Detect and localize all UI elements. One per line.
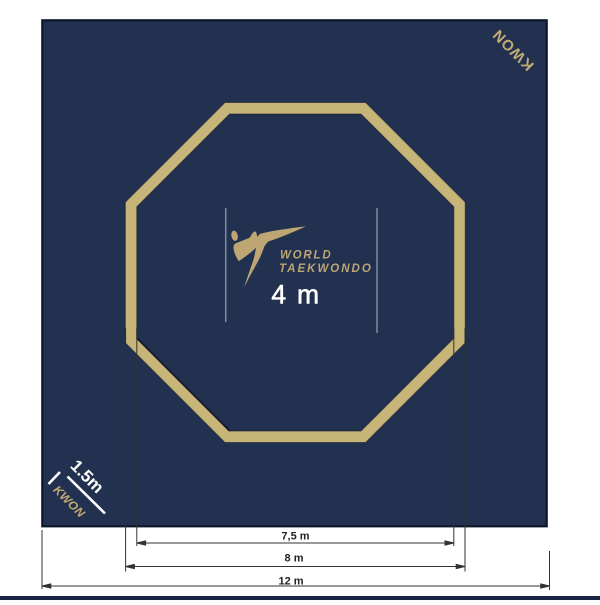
svg-text:7,5 m: 7,5 m xyxy=(281,531,309,543)
svg-text:TAEKWONDO: TAEKWONDO xyxy=(279,263,373,275)
svg-text:4: 4 xyxy=(271,280,286,310)
svg-text:m: m xyxy=(297,280,319,310)
svg-text:WORLD: WORLD xyxy=(280,249,332,261)
svg-text:8 m: 8 m xyxy=(285,553,304,565)
svg-text:12 m: 12 m xyxy=(278,576,303,588)
